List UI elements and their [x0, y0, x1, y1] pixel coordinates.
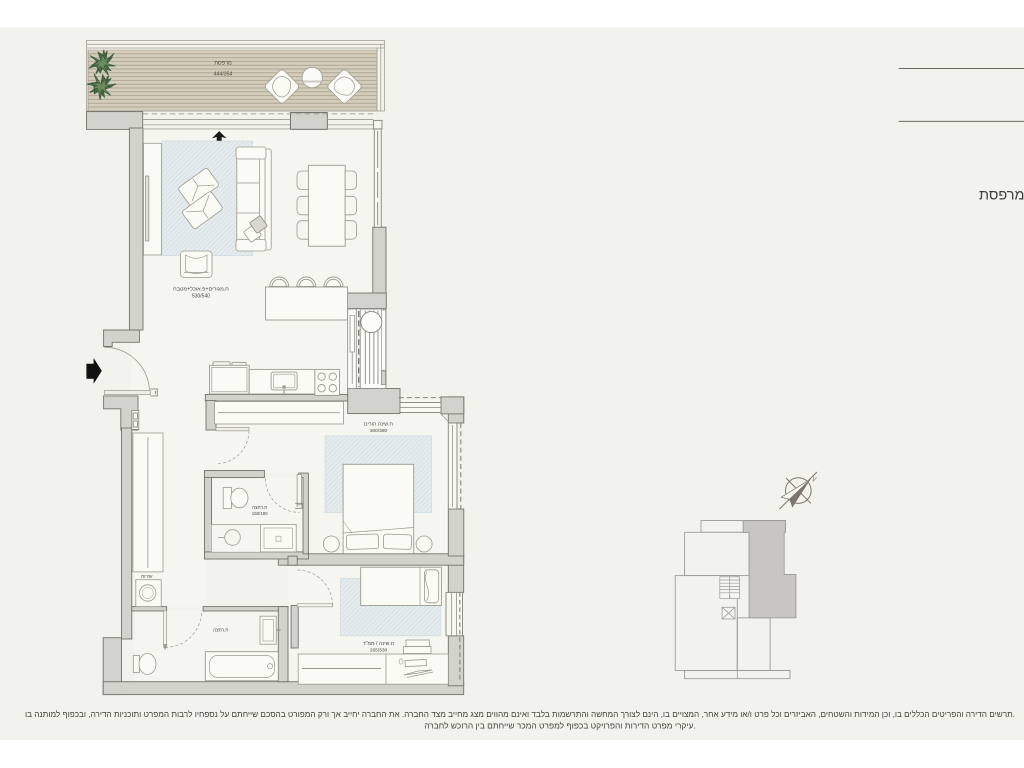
svg-text:444/354: 444/354	[214, 72, 233, 78]
svg-text:מרפסת: מרפסת	[979, 188, 1024, 204]
svg-text:300/380: 300/380	[370, 428, 388, 434]
svg-text:ח.רחצה: ח.רחצה	[213, 628, 228, 633]
svg-text:530/540: 530/540	[192, 294, 210, 300]
svg-text:עיקרי מפרט הדירות והפרויקט בכפ: עיקרי מפרט הדירות והפרויקט בכפוף למפרט ה…	[424, 721, 696, 731]
svg-text:ח.שינה הורים: ח.שינה הורים	[364, 422, 393, 428]
svg-text:שירות: שירות	[141, 574, 153, 579]
svg-text:ח.רחצה: ח.רחצה	[252, 505, 267, 510]
svg-text:ח.מגורים+פ.אוכל+מטבח: ח.מגורים+פ.אוכל+מטבח	[173, 286, 229, 293]
svg-text:מרפסת: מרפסת	[214, 61, 232, 67]
svg-text:ח.שינה / ממ"ד: ח.שינה / ממ"ד	[363, 641, 394, 647]
svg-text:265/330: 265/330	[370, 648, 388, 654]
svg-text:150/190: 150/190	[252, 511, 268, 516]
svg-text:תרשים הדירה והפריטים הכללים בו: תרשים הדירה והפריטים הכללים בו, וכן המיד…	[25, 709, 1015, 719]
